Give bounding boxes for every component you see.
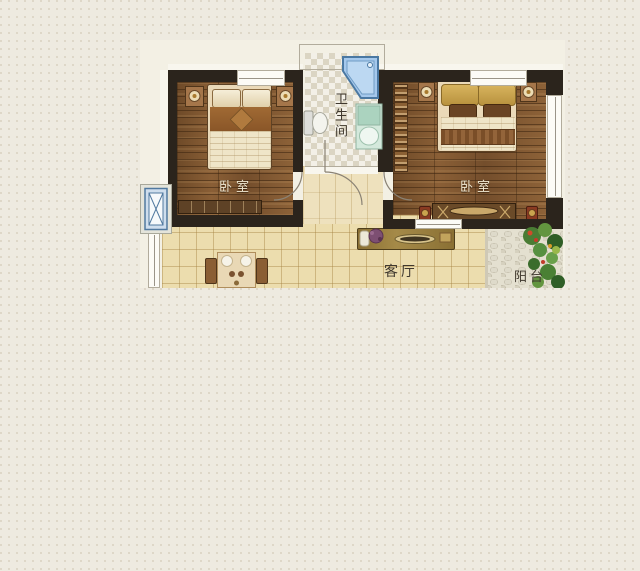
shaft-box [141,185,172,234]
vanity-sink [356,104,382,149]
console-decor [360,229,451,246]
door-arc-bedroom-left [274,172,302,200]
door-arc-bedroom-right [384,172,412,200]
floor-plan-image: 卧室 卧室 卫生间 客厅 阳台 [140,40,565,288]
bathroom-label: 卫生间 [330,92,349,188]
fixtures-overlay [140,40,565,288]
living-room-label: 客厅 [361,261,441,281]
toilet [304,111,328,135]
page: { "plan": { "labels": { "bedroom_left": … [0,0,640,571]
bedroom-left-label: 卧室 [196,176,276,195]
bedroom-right-label: 卧室 [437,176,517,195]
bench-detail [422,206,536,218]
dining-decor [222,256,252,286]
balcony-label: 阳台 [500,266,560,285]
